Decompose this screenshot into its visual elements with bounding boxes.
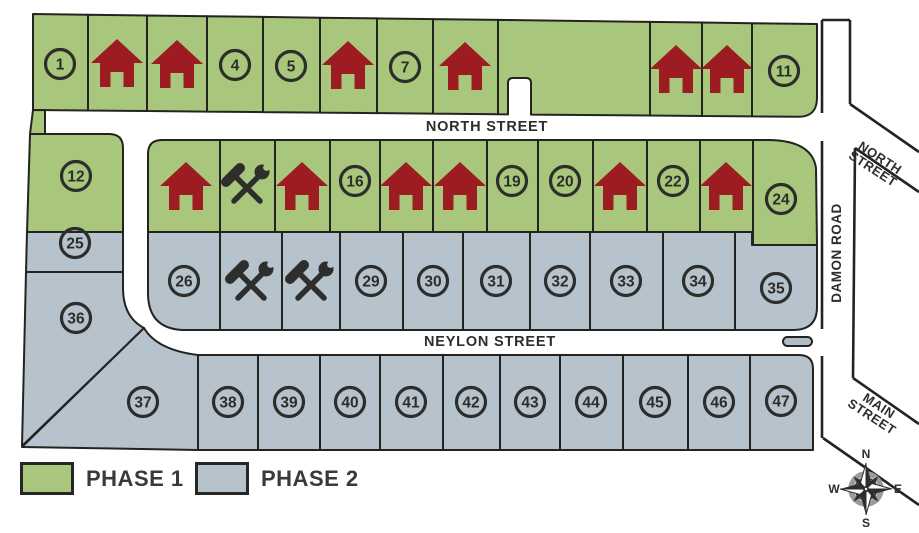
lots <box>22 14 817 450</box>
lot-number: 7 <box>401 59 410 76</box>
lot-number: 41 <box>402 394 420 411</box>
compass-west: W <box>828 482 840 496</box>
street-label: DAMON ROAD <box>829 203 844 303</box>
lot-number: 44 <box>582 394 600 411</box>
svg-text:DAMON ROAD: DAMON ROAD <box>829 203 844 303</box>
compass-south: S <box>862 516 870 530</box>
lot-number: 11 <box>776 63 793 80</box>
lot-number: 29 <box>362 273 380 290</box>
lot-number: 12 <box>67 168 84 185</box>
lot-number: 35 <box>767 280 785 297</box>
lot-number: 42 <box>462 394 479 411</box>
lot-number: 1 <box>56 56 65 73</box>
phase1-label: PHASE 1 <box>86 466 184 492</box>
compass-rose: NSWE <box>828 447 902 530</box>
lot-number: 37 <box>134 394 151 411</box>
lot-number: 26 <box>175 273 193 290</box>
street-label: NEYLON STREET <box>424 334 556 350</box>
lot-none[interactable] <box>498 20 650 116</box>
lot-number: 46 <box>710 394 728 411</box>
lot-number: 24 <box>772 191 790 208</box>
compass-north: N <box>862 447 871 461</box>
lot-number: 5 <box>287 58 296 75</box>
phase2-swatch <box>195 462 249 495</box>
street-island <box>783 337 812 346</box>
lot-number: 32 <box>551 273 568 290</box>
lot-number: 38 <box>219 394 237 411</box>
site-plan-map: 1457111216192022242536262930313233343537… <box>0 0 919 533</box>
page: 1457111216192022242536262930313233343537… <box>0 0 919 533</box>
legend-item-phase2: PHASE 2 <box>195 462 359 495</box>
lot-number: 34 <box>689 273 707 290</box>
lot-number: 45 <box>646 394 664 411</box>
lot-number: 33 <box>617 273 635 290</box>
lot-number: 4 <box>231 57 240 74</box>
lot-number: 16 <box>346 173 364 190</box>
lot-number: 19 <box>503 173 521 190</box>
legend-item-phase1: PHASE 1 <box>20 462 184 495</box>
svg-text:NORTH STREET: NORTH STREET <box>426 119 548 135</box>
svg-text:NEYLON STREET: NEYLON STREET <box>424 334 556 350</box>
lot-number: 43 <box>521 394 539 411</box>
phase2-label: PHASE 2 <box>261 466 359 492</box>
compass-east: E <box>894 482 902 496</box>
lot-number: 39 <box>280 394 298 411</box>
phase1-swatch <box>20 462 74 495</box>
lot-number: 22 <box>664 173 681 190</box>
lot-number: 30 <box>424 273 441 290</box>
road-edge <box>853 148 855 378</box>
lot-number: 40 <box>341 394 358 411</box>
street-label: NORTH STREET <box>426 119 548 135</box>
lot-number: 20 <box>556 173 573 190</box>
lot-number: 36 <box>67 310 85 327</box>
lot-none[interactable] <box>30 110 45 134</box>
lot-number: 47 <box>772 393 789 410</box>
lot-number: 25 <box>66 235 84 252</box>
lot-number: 31 <box>487 273 505 290</box>
